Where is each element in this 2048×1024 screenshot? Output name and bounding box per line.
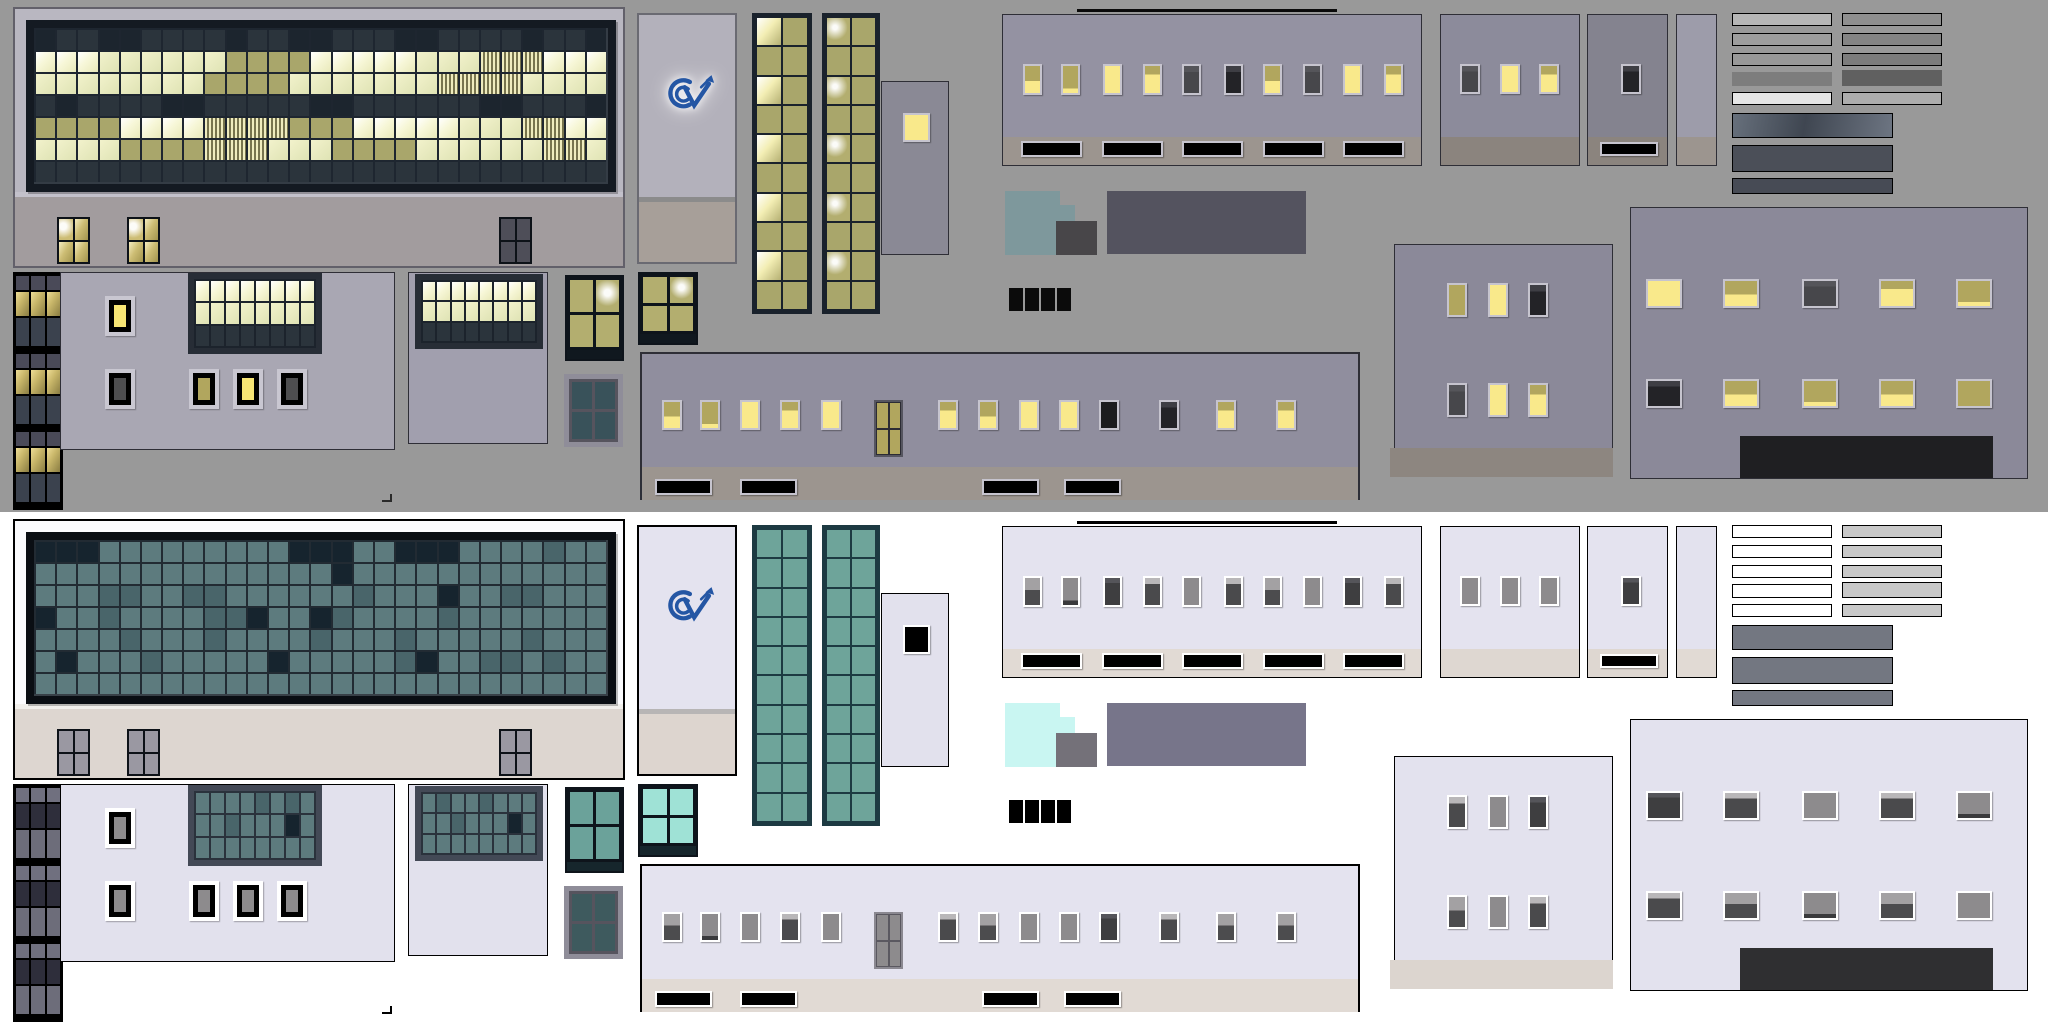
window-pane	[517, 731, 531, 752]
glass-pane	[36, 30, 55, 50]
glass-pane	[227, 30, 246, 50]
glass-pane	[311, 586, 330, 606]
glass-pane	[271, 815, 284, 835]
glass-pane	[36, 96, 55, 116]
window-strip-b	[822, 13, 880, 314]
workshop-glass-panel	[415, 786, 543, 861]
glass-pane	[121, 674, 140, 694]
window	[978, 400, 998, 430]
glass-pane	[566, 608, 585, 628]
skylight-grid	[640, 786, 696, 846]
texture-atlas	[0, 0, 2048, 1024]
glass-pane	[248, 564, 267, 584]
wall-bevel	[15, 192, 623, 197]
glass-pane	[460, 586, 479, 606]
stairwell-pane	[47, 448, 60, 472]
glass-pane	[248, 52, 267, 72]
glass-pane	[460, 96, 479, 116]
glass-pane	[437, 794, 449, 812]
glass-pane	[227, 118, 246, 138]
glass-pane	[100, 30, 119, 50]
glass-pane	[523, 564, 542, 584]
glass-pane	[241, 815, 254, 835]
glass-pane	[417, 52, 436, 72]
swatch-bar	[1732, 72, 1832, 86]
glass-pane	[36, 52, 55, 72]
glass-pane	[354, 74, 373, 94]
glass-pane	[269, 542, 288, 562]
glass-pane	[502, 30, 521, 50]
stairwell-pane	[31, 396, 44, 424]
framed-window	[189, 369, 219, 409]
glass-pane	[460, 564, 479, 584]
window	[1384, 64, 1403, 95]
glass-pane	[290, 608, 309, 628]
glass-pane	[523, 794, 535, 812]
glass-pane	[184, 52, 203, 72]
glass-pane	[480, 835, 492, 853]
glass-pane	[36, 652, 55, 672]
glass-pane	[439, 674, 458, 694]
glass-pane	[163, 564, 182, 584]
divider-band	[639, 709, 735, 714]
workshop-glass-panel	[415, 274, 543, 349]
glass-pane	[142, 96, 161, 116]
glass-pane	[142, 30, 161, 50]
window-pane	[129, 731, 143, 752]
stairwell-pane	[16, 432, 29, 446]
window	[1879, 791, 1915, 820]
skylight-pane	[596, 827, 619, 859]
glass-pane	[587, 30, 606, 50]
glass-pane	[852, 252, 875, 279]
glass-pane	[290, 96, 309, 116]
glass-pane	[290, 652, 309, 672]
window	[1343, 576, 1362, 607]
glass-pane	[757, 735, 781, 762]
glass-pane	[481, 564, 500, 584]
glass-pane	[205, 630, 224, 650]
workshop-main	[60, 784, 395, 962]
glass-pane	[256, 281, 269, 301]
window-pane	[59, 242, 73, 263]
glass-pane	[757, 794, 781, 821]
glass-pane	[396, 74, 415, 94]
glass-pane	[271, 326, 284, 346]
glass-pane	[100, 52, 119, 72]
window-black-frame	[193, 885, 215, 917]
roofline-mark	[1077, 9, 1337, 12]
stairwell-pane	[47, 396, 60, 424]
window	[1276, 912, 1296, 942]
stairwell-band	[16, 370, 60, 394]
cv-plane-logo	[663, 585, 715, 629]
glass-pane	[396, 652, 415, 672]
glass-pane	[852, 77, 875, 104]
glass-pane	[354, 652, 373, 672]
stairwell-pane	[31, 960, 44, 984]
glass-pane	[78, 630, 97, 650]
glass-pane	[852, 764, 875, 791]
glass-pane	[502, 674, 521, 694]
window-pane	[59, 219, 73, 240]
glass-pane	[827, 589, 850, 616]
glass-pane	[852, 735, 875, 762]
glass-pane	[100, 74, 119, 94]
glass-pane	[439, 542, 458, 562]
entrance-bay	[1740, 436, 1993, 478]
window	[1103, 576, 1122, 607]
glass-pane	[36, 608, 55, 628]
entrance-bay	[1740, 948, 1993, 990]
glass-pane	[333, 674, 352, 694]
glass-pane	[290, 140, 309, 160]
glass-pane	[57, 118, 76, 138]
stairwell-band	[16, 396, 60, 424]
glass-pane	[196, 838, 209, 858]
glass-pane	[269, 140, 288, 160]
window	[1019, 912, 1039, 942]
glass-pane	[783, 530, 807, 557]
glass-pane	[544, 74, 563, 94]
skylight-pane	[670, 789, 694, 815]
glass-pane	[452, 794, 464, 812]
glass-pane	[211, 815, 224, 835]
vent-square	[1057, 288, 1071, 311]
glass-pane	[417, 652, 436, 672]
glass-pane	[78, 542, 97, 562]
skylight-block-b	[638, 784, 698, 857]
glass-pane	[36, 630, 55, 650]
skylight-pane	[670, 306, 694, 332]
glass-pane	[439, 30, 458, 50]
glass-pane	[523, 52, 542, 72]
glass-pane	[142, 118, 161, 138]
glass-pane	[205, 586, 224, 606]
stairwell-pane	[16, 944, 29, 958]
glass-pane	[375, 162, 394, 182]
glass-pane	[587, 118, 606, 138]
glass-pane	[460, 652, 479, 672]
glass-pane	[290, 118, 309, 138]
window	[1646, 379, 1682, 408]
glass-pane	[184, 30, 203, 50]
glass-pane	[78, 608, 97, 628]
glass-pane	[205, 564, 224, 584]
vent-grille	[1263, 653, 1324, 669]
glass-pane	[827, 676, 850, 703]
glass-pane	[100, 96, 119, 116]
glass-pane	[396, 674, 415, 694]
glass-pane	[311, 630, 330, 650]
stairwell-band	[16, 788, 60, 802]
stairwell-pane	[16, 986, 29, 1014]
stairwell-pane	[16, 908, 29, 936]
glass-pane	[544, 96, 563, 116]
glass-pane	[827, 252, 850, 279]
glass-pane	[227, 630, 246, 650]
glass-pane	[248, 30, 267, 50]
glass-pane	[396, 118, 415, 138]
glass-pane	[523, 30, 542, 50]
stairwell-band	[16, 960, 60, 984]
glass-pane	[100, 118, 119, 138]
window-pane	[75, 754, 89, 775]
window-pane	[75, 242, 89, 263]
glass-pane	[757, 106, 781, 133]
glass-pane	[523, 162, 542, 182]
glass-pane	[396, 162, 415, 182]
swatch-bar	[1842, 525, 1942, 538]
glass-pane	[480, 794, 492, 812]
glass-pane	[544, 52, 563, 72]
glass-pane	[466, 323, 478, 341]
window	[821, 400, 841, 430]
glass-pane	[311, 162, 330, 182]
cv-tower	[637, 13, 737, 264]
corner-mark	[382, 1006, 392, 1014]
glass-pane	[211, 838, 224, 858]
window	[1646, 791, 1682, 820]
glass-pane	[494, 814, 506, 832]
stairwell-pane	[16, 318, 29, 346]
window	[1539, 576, 1559, 606]
stairwell-band	[16, 292, 60, 316]
glass-pane	[196, 326, 209, 346]
office-building-b	[1587, 14, 1668, 166]
glass-pane	[452, 282, 464, 300]
glass-pane	[827, 282, 850, 309]
glass-pane	[439, 630, 458, 650]
glass-pane	[480, 814, 492, 832]
glass-pane	[417, 30, 436, 50]
glass-pane	[523, 74, 542, 94]
glass-pane	[227, 74, 246, 94]
window	[1182, 576, 1201, 607]
glass-pane	[587, 74, 606, 94]
cv-plane-logo	[663, 73, 715, 117]
glass-pane	[757, 589, 781, 616]
wall-panel	[1676, 14, 1717, 166]
window	[1956, 891, 1992, 920]
glass-pane	[783, 559, 807, 586]
glass-pane	[423, 323, 435, 341]
glass-pane	[248, 140, 267, 160]
window-pane	[517, 219, 531, 240]
stairwell-pane	[47, 354, 60, 368]
glass-pane	[333, 564, 352, 584]
stairwell-band	[16, 804, 60, 828]
glass-pane	[248, 608, 267, 628]
swatch-bar	[1732, 625, 1893, 650]
glass-pane	[481, 674, 500, 694]
glass-pane	[437, 302, 449, 320]
window-pane	[286, 378, 298, 400]
glass-pane	[481, 52, 500, 72]
skylight-sill	[567, 862, 622, 871]
window	[1159, 912, 1179, 942]
stairwell-band	[16, 944, 60, 958]
vent-grille	[1263, 141, 1324, 157]
glass-pane	[481, 162, 500, 182]
vent-grille	[740, 991, 797, 1007]
glass-pane	[205, 652, 224, 672]
window	[1802, 279, 1838, 308]
glass-pane	[481, 586, 500, 606]
skylight-pane	[595, 924, 615, 951]
vent-square	[1025, 288, 1039, 311]
glass-pane	[311, 564, 330, 584]
glass-pane	[248, 652, 267, 672]
glass-pane	[460, 608, 479, 628]
glass-pane	[142, 674, 161, 694]
glass-pane	[466, 814, 478, 832]
stairwell-band	[16, 432, 60, 446]
swatch-bar	[1732, 565, 1832, 578]
window	[662, 400, 682, 430]
skylight-pane	[595, 894, 615, 921]
stairwell-pane	[47, 830, 60, 858]
glass-pane	[271, 838, 284, 858]
window	[1500, 576, 1520, 606]
glass-pane	[271, 303, 284, 323]
glass-pane	[100, 162, 119, 182]
base-strip	[1390, 448, 1613, 477]
window-pane	[198, 890, 210, 912]
glass-pane	[494, 323, 506, 341]
glass-pane	[783, 794, 807, 821]
glass-pane	[827, 77, 850, 104]
glass-pane	[227, 608, 246, 628]
door-pane	[890, 430, 901, 455]
glass-pane	[375, 608, 394, 628]
window-pane	[145, 219, 159, 240]
glass-pane	[481, 542, 500, 562]
glass-pane	[757, 764, 781, 791]
framed-window	[277, 369, 307, 409]
glass-pane	[184, 652, 203, 672]
glass-pane	[301, 793, 314, 813]
glass-curtain-wall	[26, 20, 616, 192]
stairwell-pane	[16, 882, 29, 906]
glass-pane	[248, 118, 267, 138]
stairwell-pane	[47, 474, 60, 502]
workshop-annex	[408, 784, 548, 956]
glass-pane	[354, 96, 373, 116]
glass-pane	[163, 118, 182, 138]
vent-grille	[1064, 479, 1121, 495]
glass-pane	[509, 302, 521, 320]
window	[1646, 279, 1682, 308]
glass-pane	[417, 162, 436, 182]
stairwell-pane	[16, 276, 29, 290]
glass-pane	[375, 652, 394, 672]
glass-pane	[757, 18, 781, 45]
glass-pane	[375, 586, 394, 606]
window-pane	[129, 219, 143, 240]
apartment-large	[1630, 719, 2028, 991]
window-black-frame	[109, 812, 131, 844]
glass-pane	[227, 96, 246, 116]
glass-pane	[827, 706, 850, 733]
glass-pane	[481, 630, 500, 650]
glass-pane	[311, 542, 330, 562]
skylight-block-a	[565, 275, 624, 361]
glass-pane	[423, 814, 435, 832]
glass-pane	[36, 542, 55, 562]
glass-pane	[375, 74, 394, 94]
glass-pane	[439, 652, 458, 672]
glass-pane	[301, 326, 314, 346]
glass-pane	[423, 794, 435, 812]
glass-pane	[121, 52, 140, 72]
glass-pane	[481, 608, 500, 628]
window-pane	[145, 731, 159, 752]
window	[1956, 279, 1992, 308]
glass-pane	[566, 118, 585, 138]
glass-pane	[205, 96, 224, 116]
glass-pane	[211, 326, 224, 346]
vent-squares	[1009, 800, 1073, 823]
framed-window	[277, 881, 307, 921]
glass-pane	[248, 630, 267, 650]
glass-pane	[184, 118, 203, 138]
window	[1488, 795, 1508, 829]
stairwell-pane	[16, 396, 29, 424]
glass-pane	[852, 706, 875, 733]
glass-pane	[417, 140, 436, 160]
swatch-bar	[1842, 70, 1942, 86]
glass-pane	[757, 223, 781, 250]
glass-pane	[375, 542, 394, 562]
workshop-glass-panel	[188, 785, 322, 866]
apartment-mid	[1394, 756, 1613, 989]
workshop-annex	[408, 272, 548, 444]
glass-pane	[852, 18, 875, 45]
glass-pane	[544, 118, 563, 138]
glass-pane	[226, 303, 239, 323]
glass-pane	[290, 30, 309, 50]
glass-pane	[460, 118, 479, 138]
vent-grille	[1102, 141, 1163, 157]
window	[1263, 64, 1282, 95]
stairwell-pane	[16, 474, 29, 502]
glass-pane	[196, 281, 209, 301]
glass-pane	[269, 74, 288, 94]
swatch-bar	[1732, 178, 1893, 194]
skylight-block-dark	[564, 374, 623, 447]
glass-pane	[460, 162, 479, 182]
glass-pane	[36, 674, 55, 694]
glass-pane	[196, 793, 209, 813]
glass-pane	[286, 326, 299, 346]
swatch-bar	[1842, 582, 1942, 598]
glass-pane	[502, 74, 521, 94]
window	[1447, 795, 1467, 829]
glass-pane	[523, 140, 542, 160]
framed-window	[233, 881, 263, 921]
glass-pane	[57, 608, 76, 628]
glass-pane	[227, 674, 246, 694]
glass-pane	[375, 96, 394, 116]
stairwell-pane	[16, 804, 29, 828]
window	[1059, 912, 1079, 942]
glass-pane	[827, 559, 850, 586]
glass-pane	[121, 586, 140, 606]
window-pane	[114, 378, 126, 400]
glass-pane	[184, 74, 203, 94]
skylight-grid	[569, 891, 618, 954]
